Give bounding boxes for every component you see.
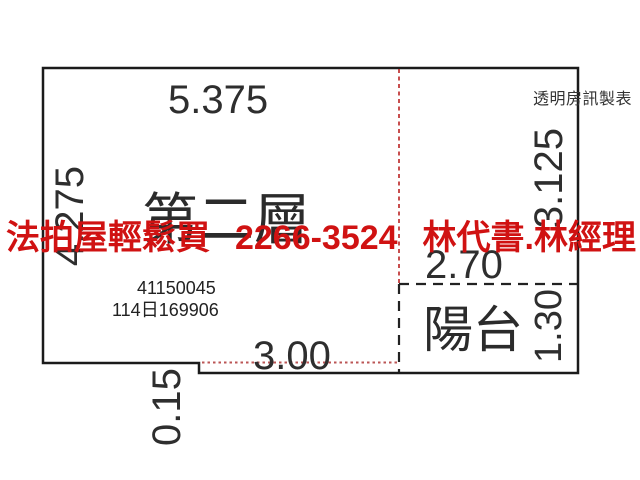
- balcony-label: 陽台: [423, 305, 523, 355]
- floor-plan-page: 5.375 4.275 3.125 2.70 1.30 3.00 0.15 第二…: [0, 0, 640, 480]
- ad-phone: 2266-3524: [235, 221, 398, 255]
- ad-contact: 林代書.林經理: [423, 221, 636, 255]
- maker-watermark: 透明房訊製表: [533, 92, 632, 108]
- dimension-step-depth: 0.15: [147, 368, 187, 446]
- dimension-bottom-width: 3.00: [253, 336, 331, 376]
- dimension-balcony-depth: 1.30: [530, 288, 568, 364]
- ad-banner: 法拍屋輕鬆買 2266-3524 林代書.林經理: [6, 221, 636, 255]
- ad-slogan: 法拍屋輕鬆買: [6, 221, 210, 255]
- dimension-top-width: 5.375: [168, 80, 268, 120]
- dimension-right-height: 3.125: [529, 123, 569, 233]
- registry-number-1: 41150045: [137, 279, 216, 297]
- registry-number-2: 114日169906: [112, 301, 219, 319]
